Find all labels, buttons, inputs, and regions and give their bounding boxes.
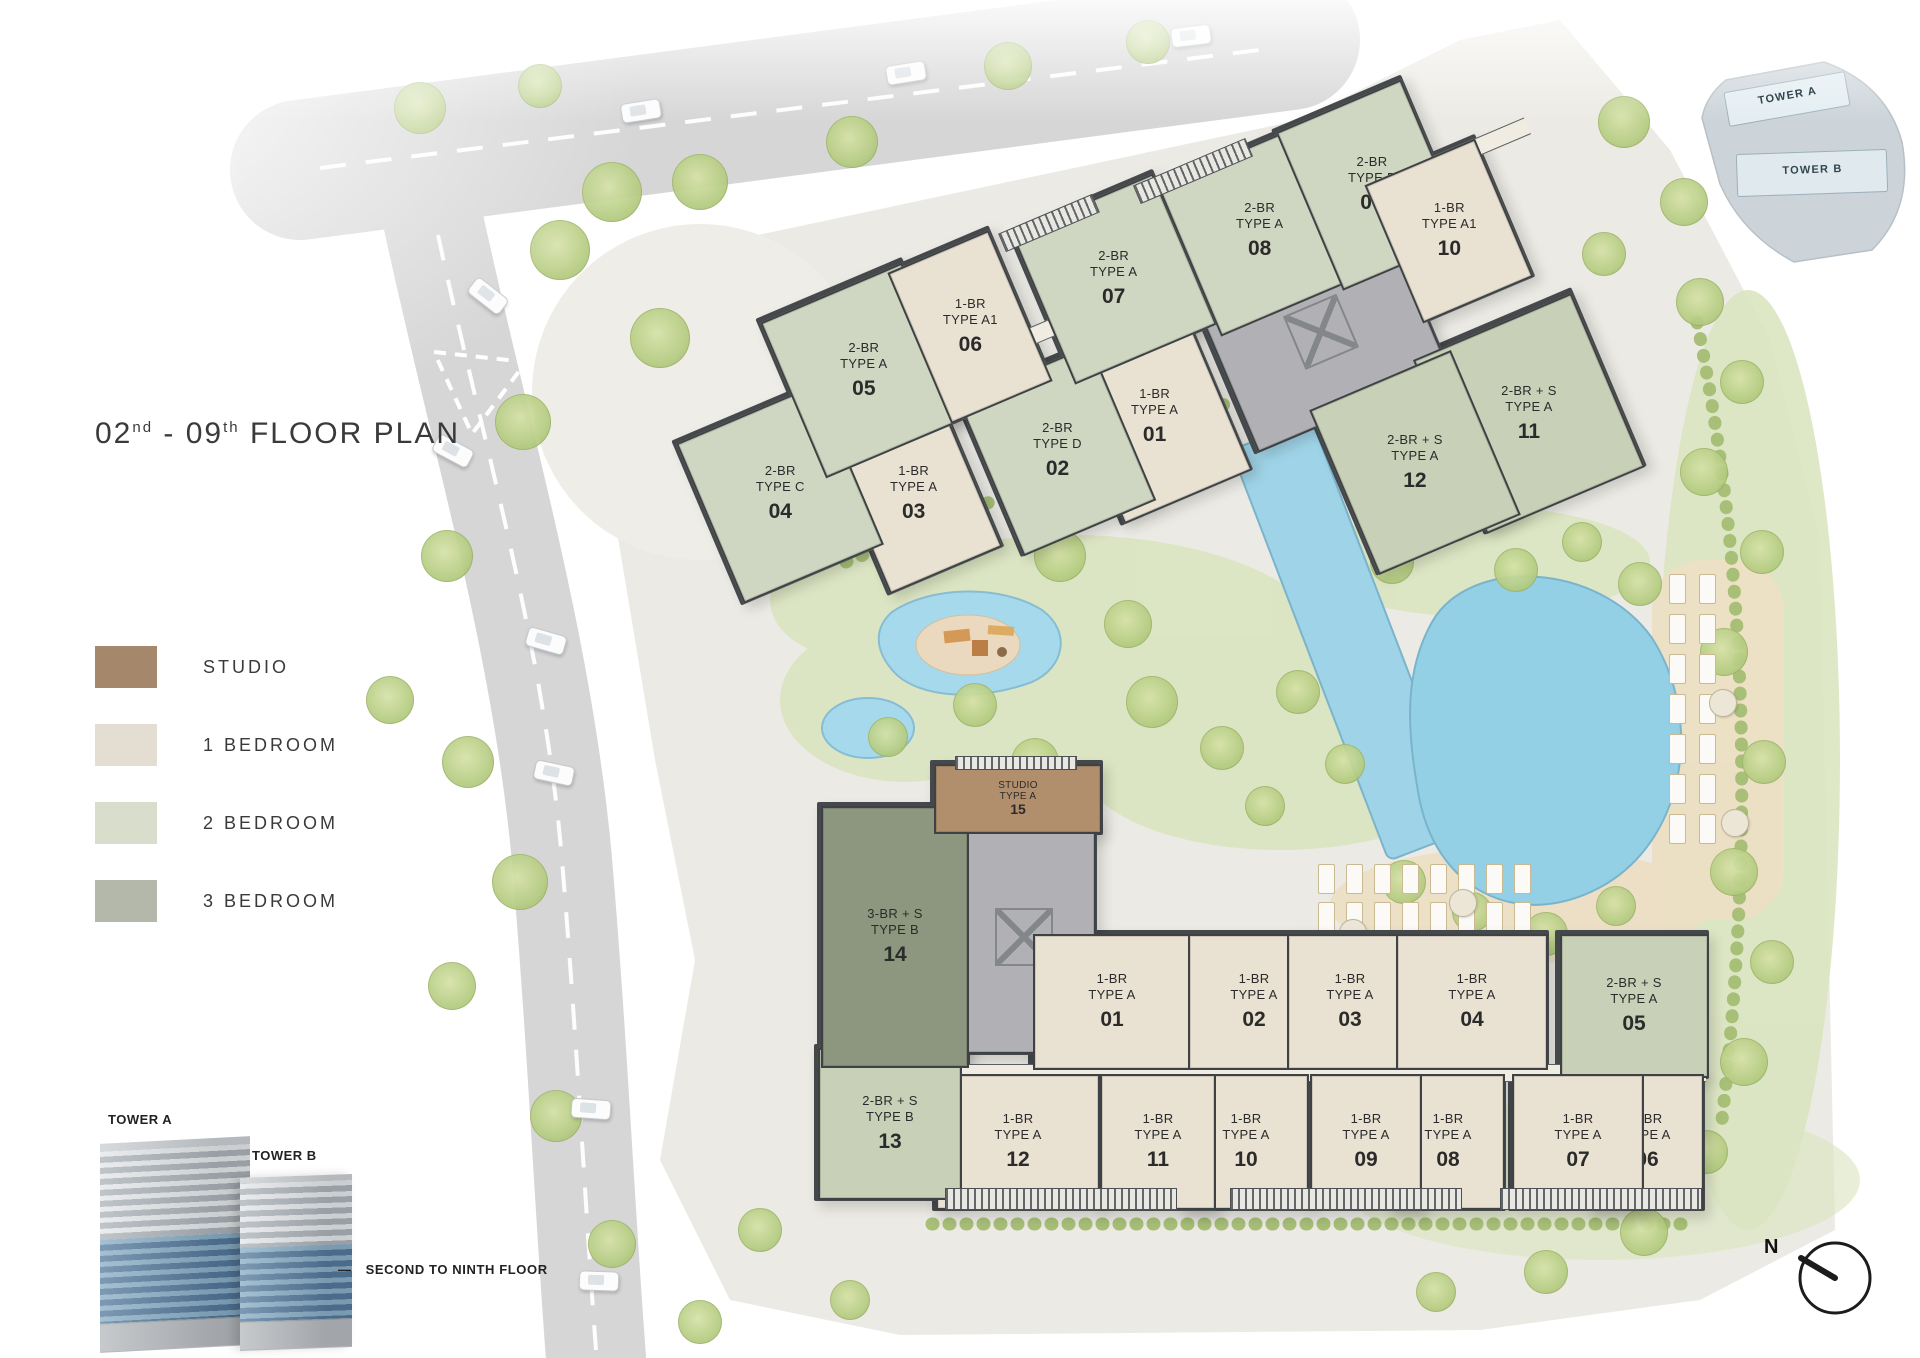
play-equipment-icon — [997, 647, 1007, 657]
floor-plan-page: 1-BRTYPE A012-BRTYPE D021-BRTYPE A032-BR… — [0, 0, 1920, 1358]
playground-island — [916, 615, 1020, 675]
site-plan-canvas — [0, 0, 1920, 1358]
keyplan — [1702, 62, 1905, 262]
play-equipment-icon — [972, 640, 988, 656]
main-pool — [1410, 576, 1681, 904]
play-equipment-icon — [988, 625, 1015, 636]
splash-pool — [822, 698, 914, 758]
compass-icon — [1800, 1243, 1870, 1313]
keyplan-tower-b-footprint — [1736, 149, 1887, 196]
